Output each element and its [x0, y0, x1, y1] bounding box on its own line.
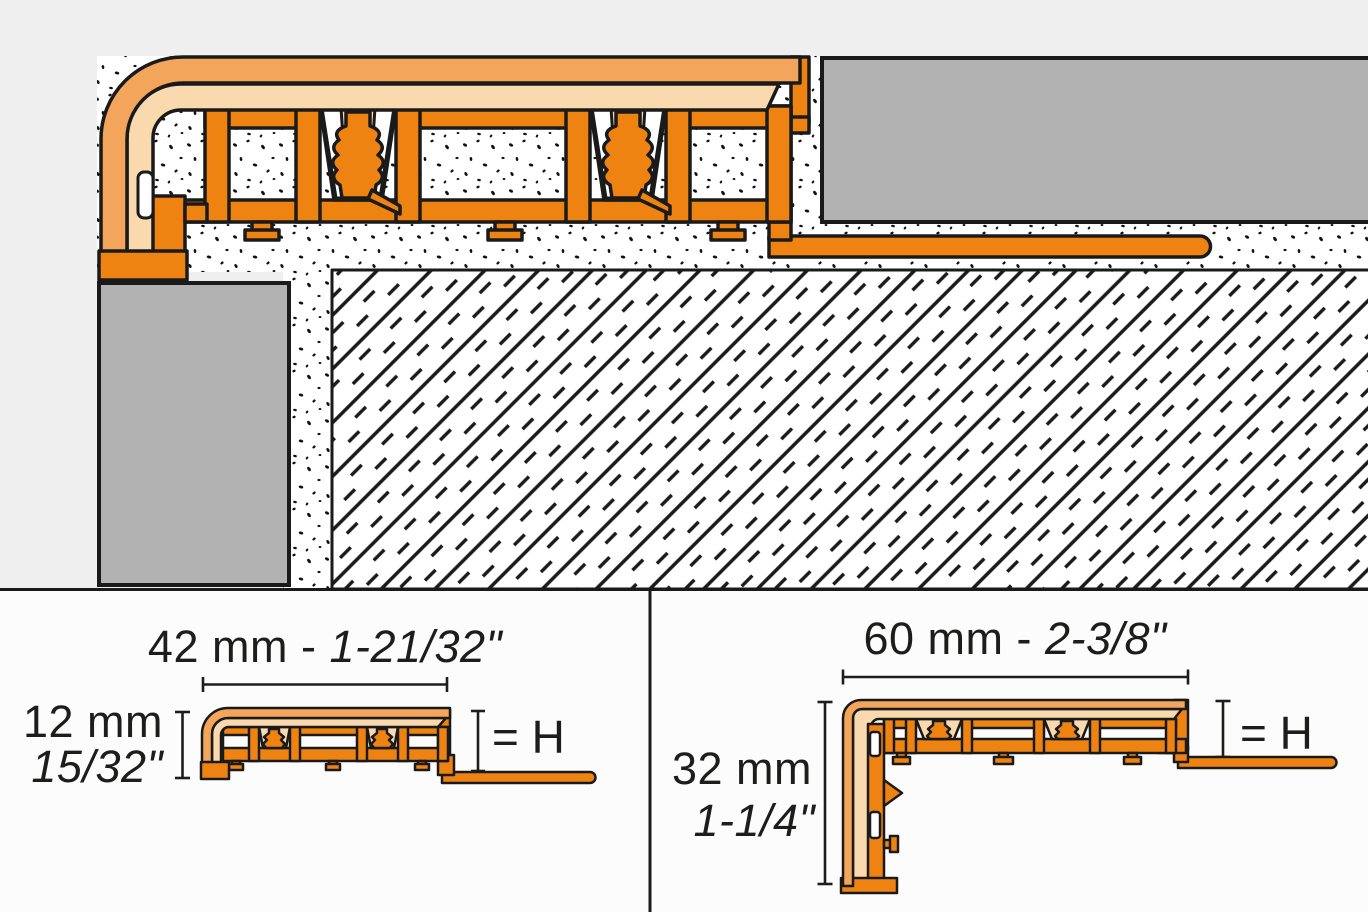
width-dimension-label: 42 mm - 1-21/32"	[148, 621, 504, 672]
riser-tile	[99, 283, 289, 585]
left-foot-small	[201, 762, 229, 779]
h-label: = H	[1240, 707, 1313, 759]
substrate-hatch	[332, 270, 1368, 589]
installation-cross-section	[0, 0, 1368, 589]
base-strip	[151, 200, 791, 222]
height-dimension-imperial: 15/32"	[31, 741, 164, 792]
tread-tile	[822, 58, 1368, 222]
left-wall	[151, 196, 185, 254]
base-web	[767, 106, 791, 222]
width-dimension-label: 60 mm - 2-3/8"	[863, 613, 1168, 664]
left-foot	[99, 251, 187, 280]
base-web	[296, 106, 320, 222]
keyhole-slot	[138, 172, 153, 218]
anchor-leg-small	[1178, 757, 1337, 768]
drawing-canvas: 42 mm - 1-21/32" 12 mm 15/32" = H	[0, 0, 1368, 912]
height-dimension-metric: 12 mm	[23, 696, 163, 747]
anchor-leg	[769, 236, 1211, 257]
thinset-mortar-riser	[283, 270, 337, 589]
base-web	[566, 106, 590, 222]
stair-profile-technical-drawing: 42 mm - 1-21/32" 12 mm 15/32" = H	[0, 0, 1368, 912]
h-label: = H	[492, 711, 565, 763]
height-dimension-metric: 32 mm	[672, 743, 812, 794]
anchor-leg-small	[442, 772, 596, 783]
left-nub	[185, 204, 207, 222]
height-dimension-imperial: 1-1/4"	[693, 795, 816, 846]
